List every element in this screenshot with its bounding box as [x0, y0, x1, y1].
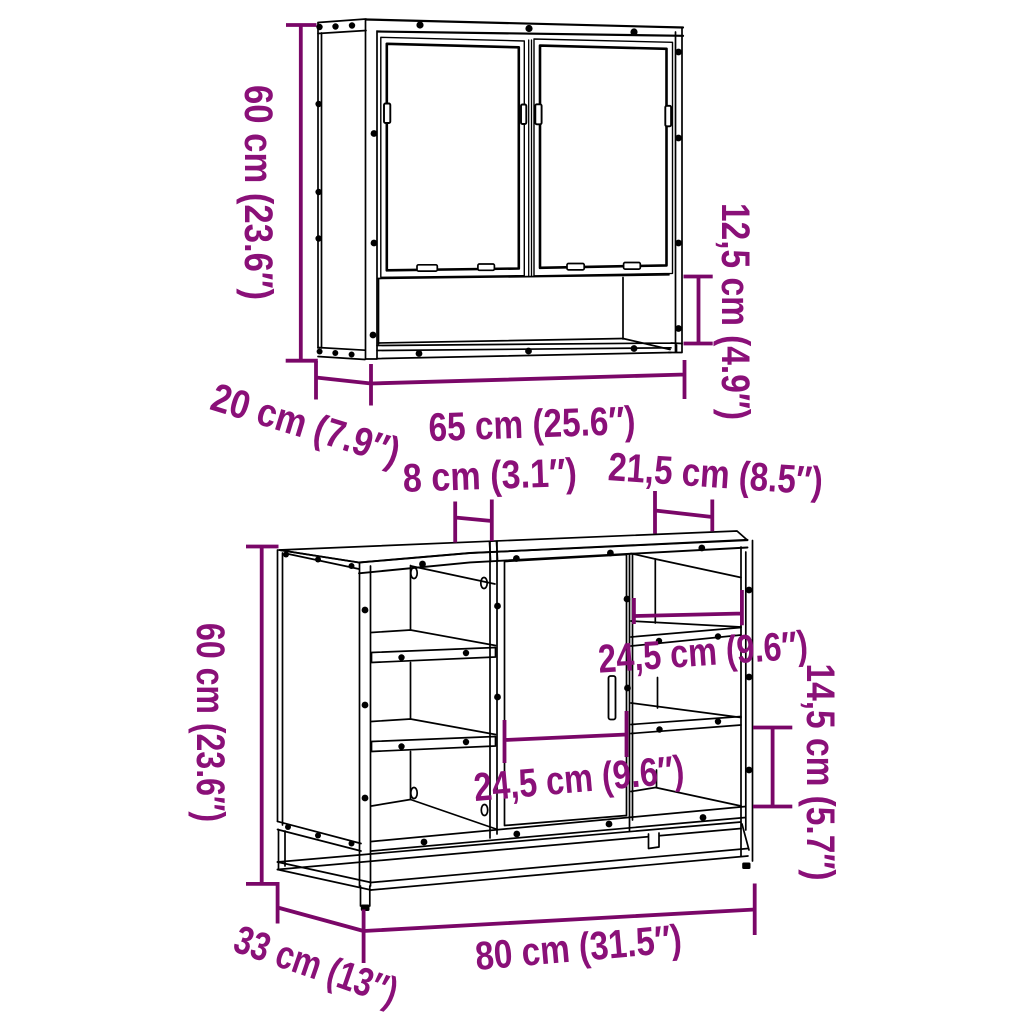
svg-text:65 cm (25.6″): 65 cm (25.6″) [428, 399, 636, 450]
svg-text:60 cm (23.6″): 60 cm (23.6″) [188, 623, 232, 822]
svg-text:12,5 cm (4.9″): 12,5 cm (4.9″) [713, 203, 757, 420]
svg-text:14,5 cm (5.7″): 14,5 cm (5.7″) [798, 664, 842, 881]
svg-text:8 cm (3.1″): 8 cm (3.1″) [402, 451, 577, 501]
svg-text:60 cm (23.6″): 60 cm (23.6″) [236, 85, 280, 300]
